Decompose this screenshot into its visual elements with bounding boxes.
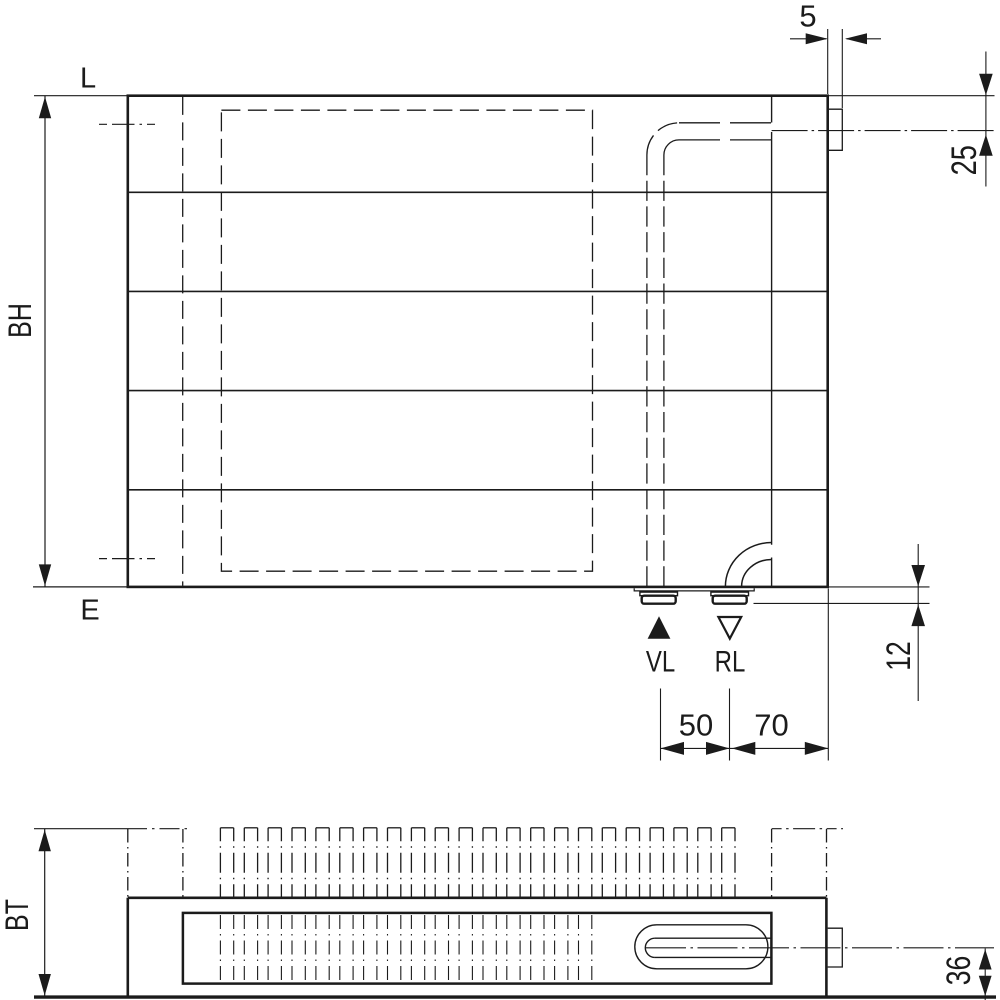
svg-text:BH: BH bbox=[3, 303, 39, 338]
svg-text:70: 70 bbox=[754, 708, 788, 743]
svg-text:L: L bbox=[80, 63, 96, 95]
svg-text:VL: VL bbox=[646, 644, 675, 678]
svg-text:12: 12 bbox=[880, 641, 918, 671]
svg-text:RL: RL bbox=[715, 644, 746, 678]
svg-text:25: 25 bbox=[945, 145, 984, 175]
svg-text:50: 50 bbox=[679, 708, 713, 743]
svg-text:E: E bbox=[80, 595, 99, 627]
svg-text:BT: BT bbox=[0, 899, 36, 931]
svg-text:36: 36 bbox=[940, 956, 978, 986]
svg-text:5: 5 bbox=[799, 0, 816, 34]
